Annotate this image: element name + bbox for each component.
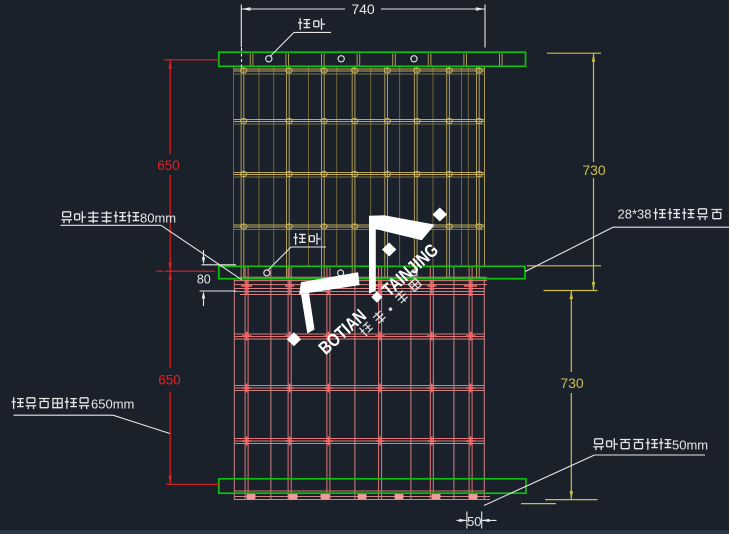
svg-text:28*38: 28*38 <box>618 207 652 222</box>
svg-text:730: 730 <box>560 375 584 391</box>
svg-text:740: 740 <box>351 1 375 17</box>
svg-text:730: 730 <box>582 162 606 178</box>
svg-text:80: 80 <box>197 273 211 287</box>
svg-text:650: 650 <box>158 373 181 388</box>
svg-text:50: 50 <box>467 514 481 529</box>
svg-text:650mm: 650mm <box>91 397 134 412</box>
svg-text:80mm: 80mm <box>140 211 176 226</box>
svg-text:650: 650 <box>157 158 180 173</box>
svg-text:50mm: 50mm <box>672 438 708 453</box>
